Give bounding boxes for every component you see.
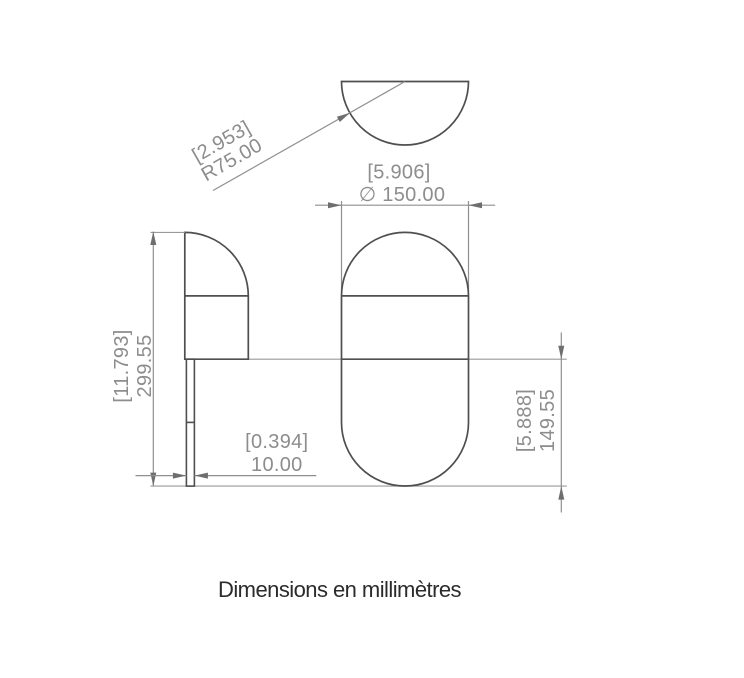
svg-text:[11.793]: [11.793] <box>111 329 133 402</box>
svg-text:299.55: 299.55 <box>134 335 156 398</box>
svg-text:10.00: 10.00 <box>251 454 303 476</box>
svg-text:149.55: 149.55 <box>537 389 559 452</box>
svg-text:[5.888]: [5.888] <box>514 389 536 452</box>
svg-text:[5.906]: [5.906] <box>367 162 430 184</box>
svg-text:[0.394]: [0.394] <box>245 431 308 453</box>
svg-text:∅ 150.00: ∅ 150.00 <box>359 184 446 206</box>
svg-text:Dimensions en millimètres: Dimensions en millimètres <box>218 577 462 602</box>
